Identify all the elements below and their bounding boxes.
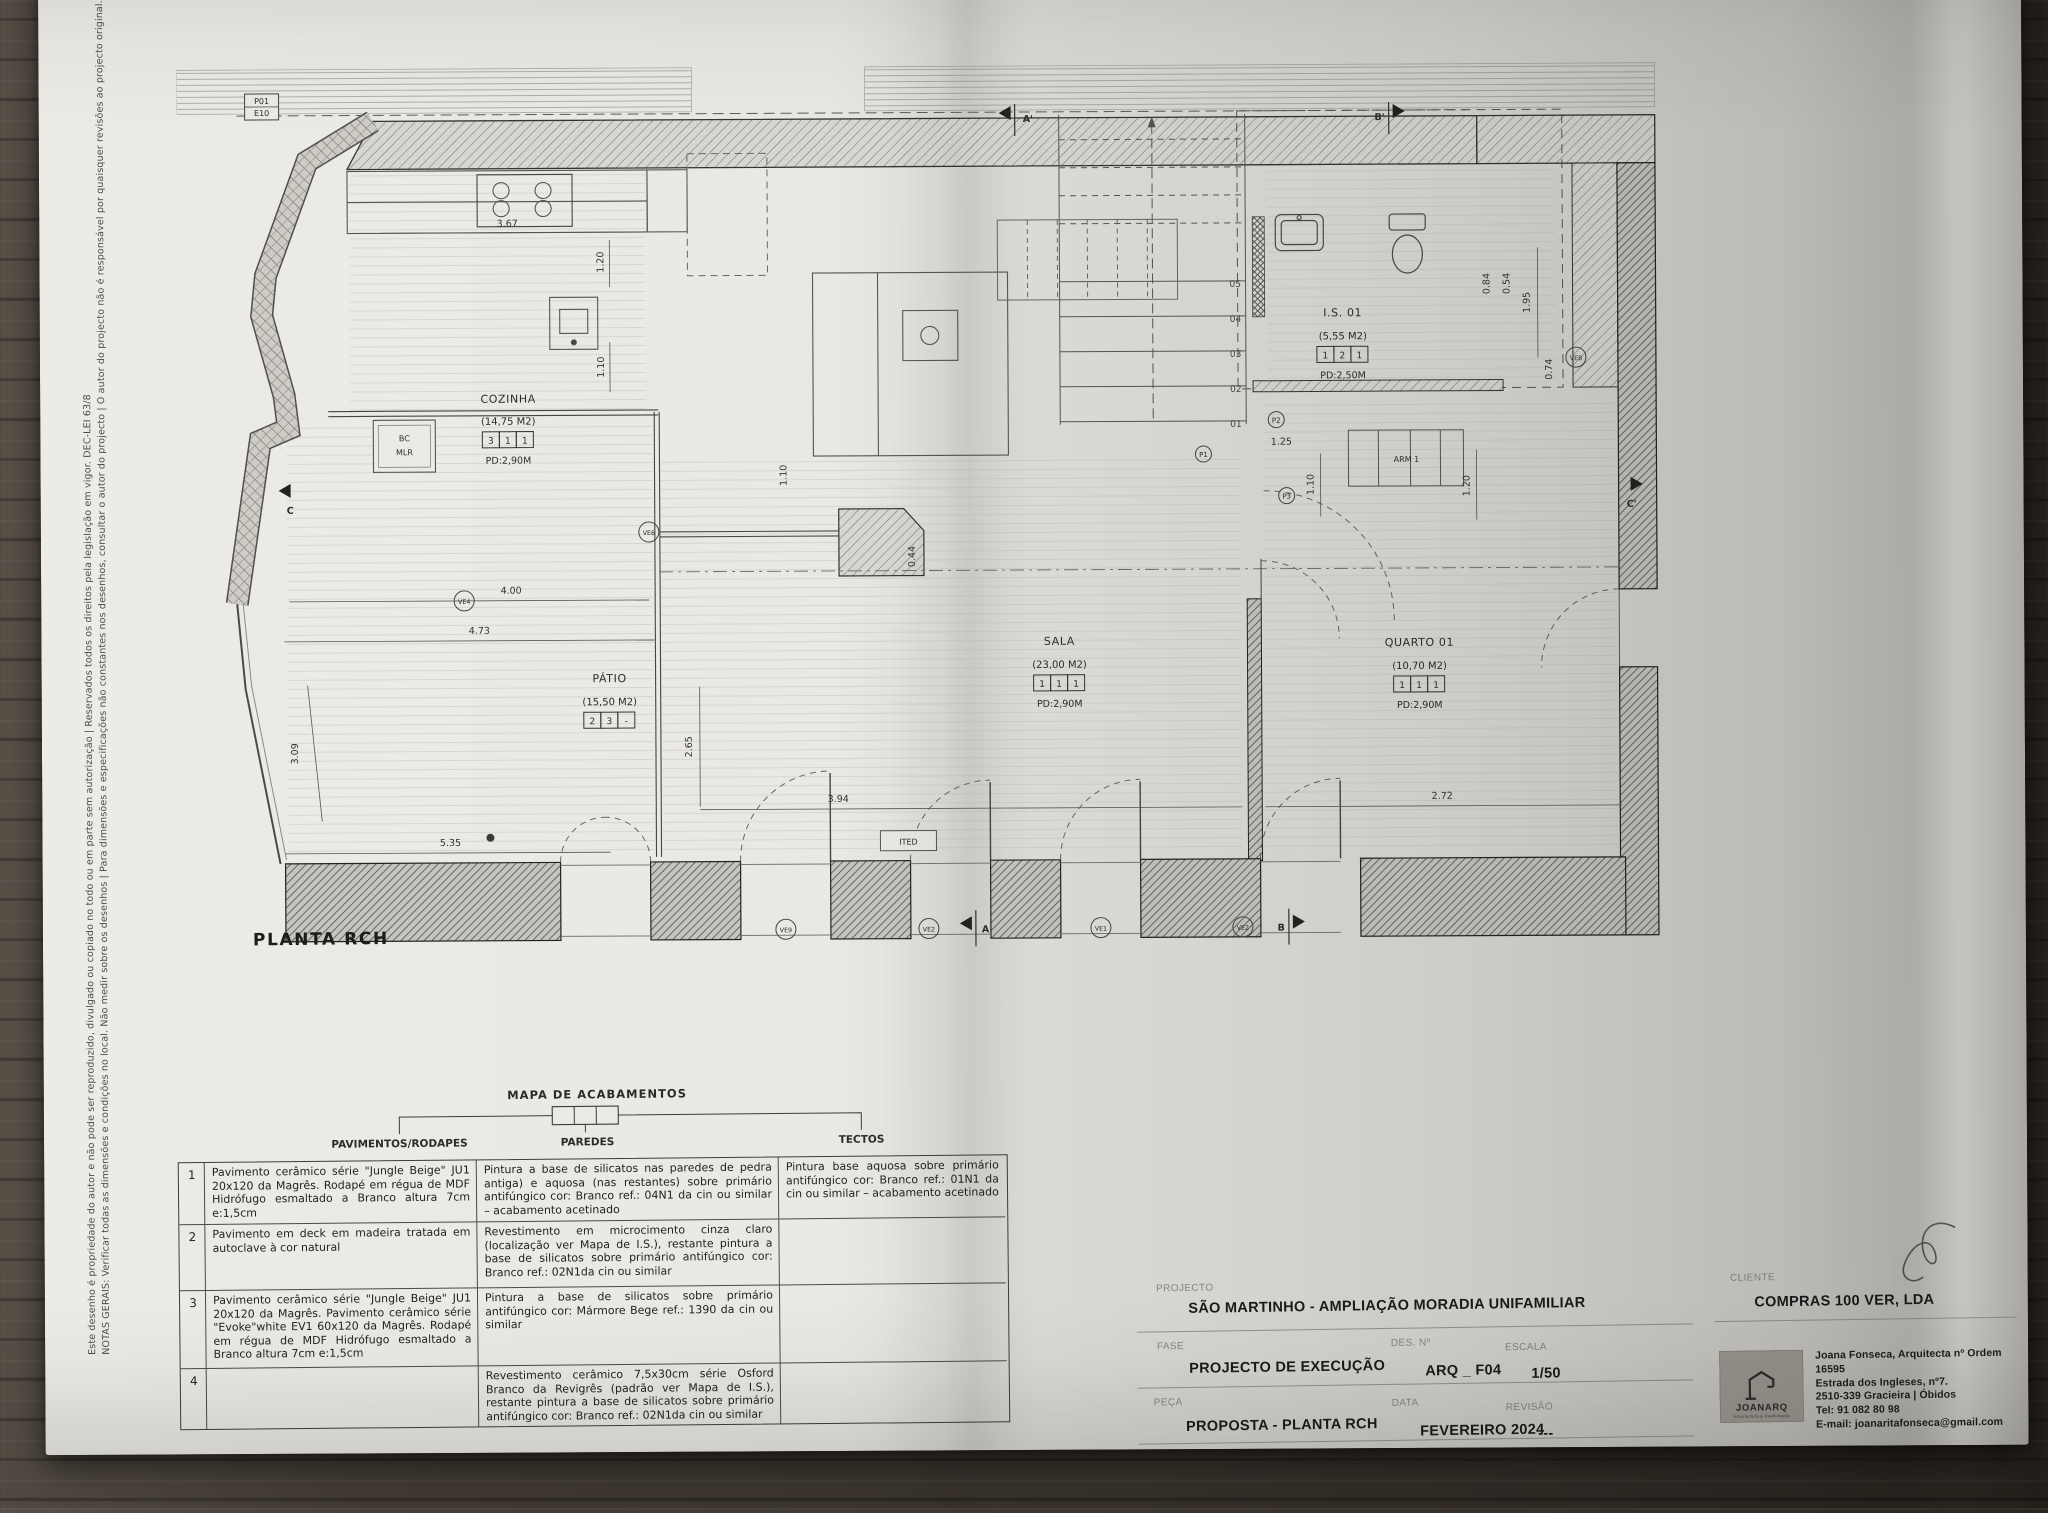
row1-pavimentos: Pavimento cerâmico série "Jungle Beige" … [205, 1160, 478, 1225]
svg-text:1.95: 1.95 [1522, 292, 1533, 313]
svg-text:A': A' [1023, 114, 1033, 125]
svg-text:VE4: VE4 [458, 599, 470, 606]
ref-e10: E10 [254, 109, 269, 118]
svg-text:PD:2,50M: PD:2,50M [1320, 370, 1366, 381]
projecto-label: PROJECTO [1156, 1283, 1214, 1295]
svg-text:VE9: VE9 [780, 927, 792, 934]
svg-text:3: 3 [488, 437, 494, 447]
section-b: B [1278, 909, 1305, 945]
mlr-label: MLR [396, 448, 413, 457]
kitchen-tall-cabinet [687, 153, 768, 275]
hall-cabinets [997, 219, 1177, 300]
svg-text:I.S. 01: I.S. 01 [1323, 306, 1362, 319]
svg-text:P2: P2 [1272, 417, 1281, 425]
svg-text:(15,50 M2): (15,50 M2) [582, 697, 637, 708]
svg-text:C': C' [1627, 499, 1637, 510]
svg-text:0.44: 0.44 [907, 546, 918, 567]
architect-name: Joana Fonseca, Arquitecta nº Ordem 16595 [1815, 1346, 2030, 1377]
patio-drain [486, 834, 494, 842]
svg-text:1.10: 1.10 [778, 465, 789, 486]
row3-paredes: Pintura a base de silicatos sobre primár… [478, 1285, 781, 1366]
section-a: A [960, 910, 990, 946]
arm-label: ARM 1 [1394, 455, 1420, 464]
cliente-rule [1715, 1317, 2017, 1323]
svg-text:1: 1 [1323, 351, 1329, 361]
rule-2 [1138, 1379, 1694, 1388]
svg-text:B': B' [1374, 112, 1384, 123]
svg-text:4.73: 4.73 [469, 626, 490, 637]
ited-label: ITED [899, 838, 918, 847]
svg-text:-: - [625, 717, 628, 727]
insulated-wall [1252, 217, 1265, 317]
data-value: FEVEREIRO 2024 [1420, 1422, 1545, 1440]
svg-text:0.54: 0.54 [1501, 273, 1512, 294]
svg-text:C: C [287, 506, 294, 517]
svg-text:02: 02 [1230, 385, 1242, 395]
row4-pavimentos [207, 1366, 480, 1429]
svg-text:05: 05 [1230, 280, 1242, 290]
joanarq-logo: JOANARQ Arquitectura & Reabilitação [1719, 1350, 1804, 1423]
svg-text:0.84: 0.84 [1481, 273, 1492, 294]
svg-text:1: 1 [1357, 351, 1363, 361]
plan-title: PLANTA RCH [253, 929, 389, 950]
row3-pavimentos: Pavimento cerâmico série "Jungle Beige" … [206, 1288, 479, 1369]
svg-text:1: 1 [1416, 681, 1422, 691]
svg-text:1: 1 [1056, 680, 1062, 690]
bc-mlr-box: BC MLR [373, 420, 435, 472]
svg-text:3: 3 [606, 717, 612, 727]
svg-text:1.10: 1.10 [1306, 474, 1317, 495]
svg-text:03: 03 [1230, 350, 1242, 360]
svg-text:1: 1 [1433, 681, 1439, 691]
svg-text:2.65: 2.65 [684, 736, 695, 757]
col-header-pavimentos: PAVIMENTOS/RODAPES [331, 1137, 467, 1150]
sidewalk-bands [176, 63, 1654, 117]
photographed-sheet: NOTAS GERAIS: Verificar todas as dimensõ… [0, 0, 2048, 1513]
svg-text:2.72: 2.72 [1432, 791, 1453, 802]
svg-text:1: 1 [1039, 680, 1045, 690]
stair-numbers: 05 04 03 02 01 [1230, 280, 1243, 430]
kitchen-island [812, 272, 1008, 456]
svg-text:(10,70 M2): (10,70 M2) [1392, 661, 1447, 672]
row2-num: 2 [179, 1225, 206, 1291]
ited-box: ITED [880, 830, 936, 850]
rule-1 [1137, 1323, 1693, 1332]
marker-ve2a: VE2 [919, 918, 939, 938]
svg-text:B: B [1278, 923, 1285, 934]
svg-text:3.09: 3.09 [290, 743, 301, 764]
data-label: DATA [1392, 1398, 1419, 1409]
svg-text:SALA: SALA [1044, 635, 1075, 648]
row2-paredes: Revestimento em microcimento cinza claro… [477, 1219, 780, 1288]
svg-text:5.35: 5.35 [440, 838, 461, 849]
revisao-value: --- [1538, 1426, 1554, 1442]
ref-p01: P01 [254, 97, 269, 106]
finishes-title: MAPA DE ACABAMENTOS [507, 1086, 687, 1102]
svg-text:0.74: 0.74 [1544, 359, 1555, 380]
marker-ve9: VE9 [776, 919, 796, 939]
svg-text:VE2: VE2 [923, 926, 935, 933]
peca-value: PROPOSTA - PLANTA RCH [1186, 1416, 1378, 1435]
svg-text:2: 2 [589, 717, 595, 727]
svg-text:A: A [982, 924, 990, 935]
row4-num: 4 [181, 1369, 208, 1429]
svg-text:(23,00 M2): (23,00 M2) [1032, 660, 1087, 671]
svg-text:1.10: 1.10 [596, 357, 607, 378]
floor-textures [285, 165, 1619, 860]
svg-text:1.20: 1.20 [595, 252, 606, 273]
finishes-header-tree: MAPA DE ACABAMENTOS PAVIMENTOS/RODAPES P… [177, 1078, 1012, 1162]
svg-text:VE8: VE8 [1570, 355, 1582, 362]
svg-text:PD:2,90M: PD:2,90M [486, 456, 532, 467]
row4-tectos [781, 1361, 1008, 1423]
svg-text:1: 1 [1073, 680, 1079, 690]
des-value: ARQ _ F04 [1425, 1362, 1501, 1379]
row4-paredes: Revestimento cerâmico 7,5x30cm série Osf… [479, 1363, 782, 1426]
svg-text:1: 1 [505, 437, 511, 447]
row1-paredes: Pintura a base de silicatos nas paredes … [477, 1157, 780, 1222]
svg-text:4.00: 4.00 [501, 586, 522, 597]
svg-text:1.20: 1.20 [1462, 475, 1473, 496]
col-header-paredes: PAREDES [561, 1136, 615, 1149]
svg-text:VE6: VE6 [643, 530, 655, 537]
peca-label: PEÇA [1154, 1397, 1183, 1408]
is-bottom-wall [1253, 379, 1503, 391]
finishes-map: MAPA DE ACABAMENTOS PAVIMENTOS/RODAPES P… [177, 1078, 1014, 1431]
projecto-value: SÃO MARTINHO - AMPLIAÇÃO MORADIA UNIFAMI… [1188, 1295, 1585, 1317]
row3-num: 3 [180, 1291, 207, 1369]
row1-num: 1 [179, 1163, 206, 1225]
row1-tectos: Pintura base aquosa sobre primário antif… [779, 1155, 1006, 1219]
svg-text:COZINHA: COZINHA [480, 393, 535, 406]
svg-text:VE1: VE1 [1095, 926, 1107, 933]
architect-email: E-mail: joanaritafonseca@gmail.com [1816, 1415, 2031, 1432]
svg-text:P1: P1 [1199, 451, 1208, 459]
svg-text:PÁTIO: PÁTIO [592, 672, 626, 685]
svg-text:QUARTO 01: QUARTO 01 [1385, 636, 1454, 649]
svg-text:(14,75 M2): (14,75 M2) [481, 417, 536, 428]
finishes-grid: 1 Pavimento cerâmico série "Jungle Beige… [178, 1154, 1011, 1430]
cliente-label: CLIENTE [1730, 1272, 1775, 1284]
svg-text:01: 01 [1230, 420, 1242, 430]
des-label: DES. Nº [1391, 1337, 1431, 1349]
svg-text:3.67: 3.67 [497, 219, 518, 230]
svg-text:PD:2,90M: PD:2,90M [1397, 700, 1443, 711]
ref-box-p01-e10: P01 E10 [245, 94, 279, 120]
fase-label: FASE [1157, 1341, 1184, 1352]
fase-value: PROJECTO DE EXECUÇÃO [1189, 1358, 1385, 1377]
svg-text:PD:2,90M: PD:2,90M [1037, 699, 1083, 710]
row2-tectos [779, 1217, 1006, 1285]
row2-pavimentos: Pavimento em deck em madeira tratada em … [205, 1222, 478, 1291]
svg-text:1: 1 [522, 437, 528, 447]
row3-tectos [780, 1283, 1007, 1363]
svg-text:3.94: 3.94 [828, 794, 849, 805]
svg-text:04: 04 [1230, 315, 1242, 325]
svg-text:1: 1 [1399, 681, 1405, 691]
bottom-wall [286, 857, 1626, 942]
bc-label: BC [399, 434, 410, 443]
joanarq-house-icon [1739, 1367, 1784, 1404]
floor-plan-drawing: P01 E10 P02 E11 [176, 57, 1661, 985]
rule-3 [1138, 1435, 1694, 1444]
col-header-tectos: TECTOS [839, 1133, 885, 1145]
handwritten-signature [1884, 1215, 1979, 1295]
escala-value: 1/50 [1531, 1365, 1561, 1381]
svg-text:(5,55 M2): (5,55 M2) [1319, 331, 1367, 342]
svg-text:P3: P3 [1282, 493, 1291, 501]
svg-text:2: 2 [1340, 351, 1346, 361]
logo-subtitle: Arquitectura & Reabilitação [1734, 1413, 1791, 1419]
general-notes-vertical: NOTAS GERAIS: Verificar todas as dimensõ… [89, 210, 135, 1355]
escala-label: ESCALA [1505, 1342, 1547, 1354]
marker-ve1: VE1 [1091, 918, 1111, 938]
svg-text:1.25: 1.25 [1271, 437, 1292, 448]
architect-contact: Joana Fonseca, Arquitecta nº Ordem 16595… [1815, 1346, 2031, 1432]
svg-text:VE2: VE2 [1237, 925, 1249, 932]
revisao-label: REVISÃO [1506, 1402, 1553, 1414]
